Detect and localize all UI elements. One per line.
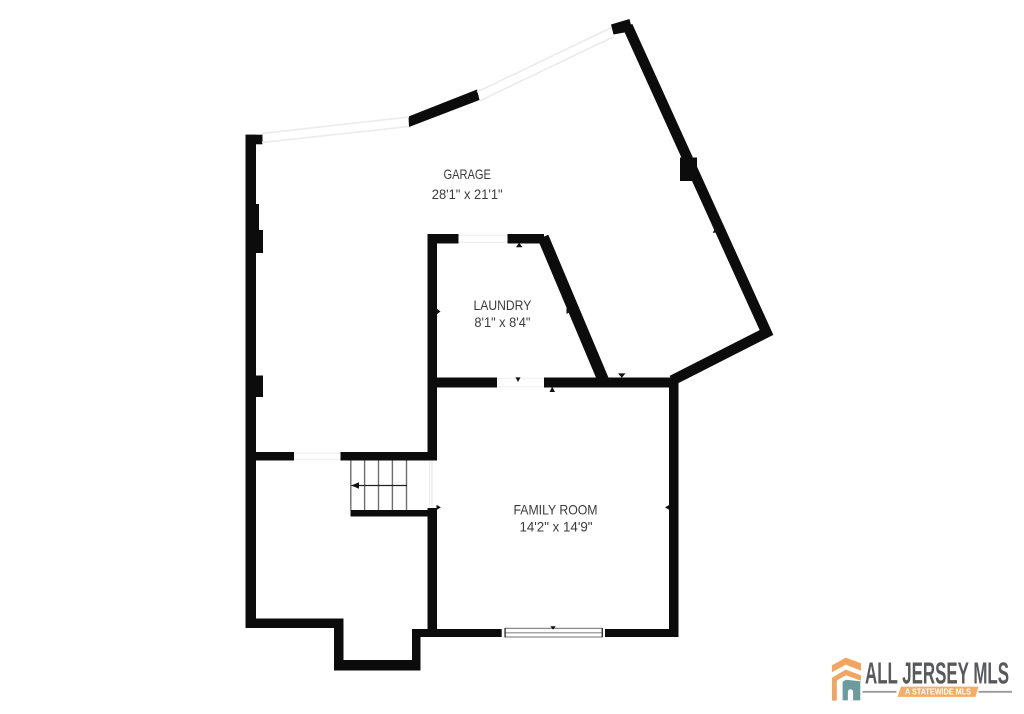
svg-text:ALL JERSEY MLS: ALL JERSEY MLS: [865, 656, 1009, 691]
svg-text:FAMILY ROOM: FAMILY ROOM: [513, 501, 597, 517]
svg-text:GARAGE: GARAGE: [443, 166, 491, 182]
svg-text:28'1" x 21'1": 28'1" x 21'1": [432, 187, 503, 202]
svg-text:14'2" x 14'9": 14'2" x 14'9": [519, 520, 592, 535]
svg-text:LAUNDRY: LAUNDRY: [473, 297, 531, 313]
svg-text:A STATEWIDE MLS: A STATEWIDE MLS: [905, 688, 972, 697]
svg-text:8'1" x 8'4": 8'1" x 8'4": [474, 315, 530, 330]
